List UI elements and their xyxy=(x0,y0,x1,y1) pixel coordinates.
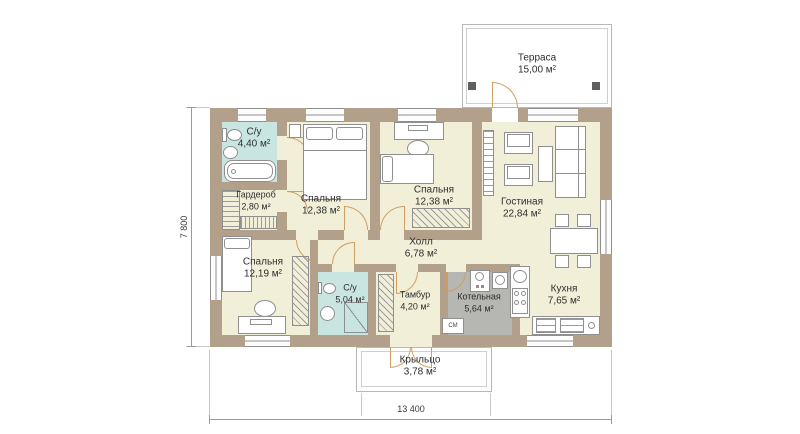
dining-table-icon xyxy=(550,228,598,254)
boiler-detail xyxy=(481,285,484,288)
room-area: 4,20 м² xyxy=(400,301,429,311)
door-opening xyxy=(380,230,404,240)
window xyxy=(245,335,290,347)
room-area: 6,78 м² xyxy=(405,248,437,259)
room-area: 5,04 м² xyxy=(335,294,364,304)
dimension-label-width: 13 400 xyxy=(397,404,425,414)
room-name: Котельная xyxy=(457,292,501,302)
dining-chair-icon xyxy=(555,214,569,227)
wardrobe-hatch xyxy=(378,274,394,332)
sink-icon xyxy=(223,146,238,159)
wall-bedroom2-living xyxy=(472,122,482,240)
room-area: 15,00 м² xyxy=(518,64,556,75)
door-leaf xyxy=(354,242,355,264)
pillow-icon xyxy=(224,238,250,249)
toilet-icon xyxy=(318,282,322,294)
tv-stand-icon xyxy=(483,130,494,196)
room-area: 3,78 м² xyxy=(404,366,436,377)
stove-burner xyxy=(521,291,526,296)
door-opening xyxy=(446,264,466,272)
door-opening xyxy=(277,190,287,212)
door-opening xyxy=(344,230,368,240)
dimension-tick xyxy=(187,346,196,347)
bathtub-drain xyxy=(231,169,236,174)
room-label-kitchen: Кухня 7,65 м² xyxy=(548,284,580,307)
armchair-seat xyxy=(507,134,530,147)
oven-icon xyxy=(560,318,584,333)
room-label-bathroom1: С/у 4,40 м² xyxy=(238,127,270,150)
room-label-bathroom2: С/у 5,04 м² xyxy=(335,283,364,306)
dimension-tick xyxy=(611,415,612,424)
boiler-icon xyxy=(475,272,484,281)
terrace-post xyxy=(468,82,476,90)
sofa-icon xyxy=(555,126,586,198)
sofa-back-line xyxy=(578,127,579,197)
extension-line xyxy=(361,393,362,416)
room-name: Терраса xyxy=(518,53,556,64)
wardrobe-rail xyxy=(240,216,277,229)
extension-line xyxy=(611,350,612,416)
window xyxy=(210,256,222,300)
dimension-tick xyxy=(209,415,210,424)
room-label-living: Гостиная 22,84 м² xyxy=(501,197,543,220)
room-area: 4,40 м² xyxy=(238,138,270,149)
room-area: 12,19 м² xyxy=(244,268,282,279)
room-label-vestibule: Тамбур 4,20 м² xyxy=(400,290,431,313)
room-name: Спальня xyxy=(243,257,283,268)
wall-bedroom1-bedroom2 xyxy=(370,122,380,230)
utility-sink-icon xyxy=(495,275,505,285)
office-chair-icon xyxy=(254,300,276,317)
nightstand-icon xyxy=(289,124,301,138)
toilet-icon xyxy=(323,283,336,294)
floor-plan: СМ Терраса 15,00 м² С/у 4,40 м² Гардероб… xyxy=(0,0,800,434)
monitor-icon xyxy=(250,319,272,325)
window xyxy=(527,335,573,347)
washing-machine-icon: СМ xyxy=(442,318,464,334)
room-label-bedroom1: Спальня 12,38 м² xyxy=(301,194,341,217)
room-name: Спальня xyxy=(414,185,454,196)
room-label-bedroom2: Спальня 12,38 м² xyxy=(414,185,454,208)
room-label-boiler: Котельная 5,64 м² xyxy=(457,292,501,315)
stove-burner xyxy=(521,300,526,305)
door-opening xyxy=(277,136,287,160)
door-opening xyxy=(396,264,418,272)
pillow-icon xyxy=(382,156,393,182)
room-area: 12,38 м² xyxy=(302,205,340,216)
dimension-line-vertical xyxy=(191,108,192,347)
wardrobe-hatch xyxy=(292,256,309,326)
armchair-seat xyxy=(507,166,530,179)
wardrobe-hatch xyxy=(412,208,470,228)
shower-icon xyxy=(344,302,368,333)
room-name: Тамбур xyxy=(400,290,431,300)
boiler-detail xyxy=(476,285,479,288)
pillow-icon xyxy=(306,127,333,140)
dining-chair-icon xyxy=(555,255,569,268)
sofa-cushion-line xyxy=(556,149,585,150)
sink-icon xyxy=(320,306,335,321)
monitor-icon xyxy=(408,125,428,131)
bed-fold-line xyxy=(304,150,366,151)
extension-line xyxy=(490,393,491,416)
exterior-wall-left xyxy=(210,108,222,347)
dishwasher-icon xyxy=(536,318,556,333)
door-leaf xyxy=(404,206,405,230)
dimension-line-horizontal xyxy=(210,419,612,420)
room-area: 2,80 м² xyxy=(241,201,270,211)
extension-line xyxy=(209,350,210,416)
room-area: 12,38 м² xyxy=(415,196,453,207)
room-area: 7,65 м² xyxy=(548,295,580,306)
wall-bath2-vestibule xyxy=(368,272,376,335)
dining-chair-icon xyxy=(577,214,591,227)
dimension-label-height: 7 800 xyxy=(179,216,189,239)
stove-burner xyxy=(514,291,519,296)
room-area: 22,84 м² xyxy=(503,208,541,219)
pillow-icon xyxy=(336,127,363,140)
room-name: Крыльцо xyxy=(400,355,441,366)
room-label-bedroom3: Спальня 12,19 м² xyxy=(243,257,283,280)
room-name: С/у xyxy=(246,127,261,138)
room-label-wardrobe: Гардероб 2,80 м² xyxy=(236,190,276,213)
room-area: 5,64 м² xyxy=(464,303,493,313)
fridge-icon xyxy=(588,322,595,329)
door-opening xyxy=(492,108,518,122)
door-opening xyxy=(390,335,432,347)
room-name: Гардероб xyxy=(236,190,276,200)
sofa-cushion-line xyxy=(556,173,585,174)
room-name: Спальня xyxy=(301,194,341,205)
room-label-terrace: Терраса 15,00 м² xyxy=(518,53,556,76)
door-opening xyxy=(296,230,318,240)
dining-chair-icon xyxy=(577,255,591,268)
room-name: С/у xyxy=(343,283,357,293)
window xyxy=(600,200,612,254)
coffee-table-icon xyxy=(538,146,553,182)
room-name: Холл xyxy=(409,237,433,248)
room-name: Кухня xyxy=(551,284,578,295)
window xyxy=(398,108,436,122)
room-label-porch: Крыльцо 3,78 м² xyxy=(400,355,441,378)
room-label-hall: Холл 6,78 м² xyxy=(405,237,437,260)
window xyxy=(238,108,266,122)
terrace-post xyxy=(592,82,600,90)
stove-burner xyxy=(514,300,519,305)
window xyxy=(528,108,578,122)
window xyxy=(306,108,344,122)
room-name: Гостиная xyxy=(501,197,543,208)
door-opening xyxy=(332,264,354,272)
kitchen-sink-icon xyxy=(513,270,527,283)
dimension-tick xyxy=(187,107,196,108)
